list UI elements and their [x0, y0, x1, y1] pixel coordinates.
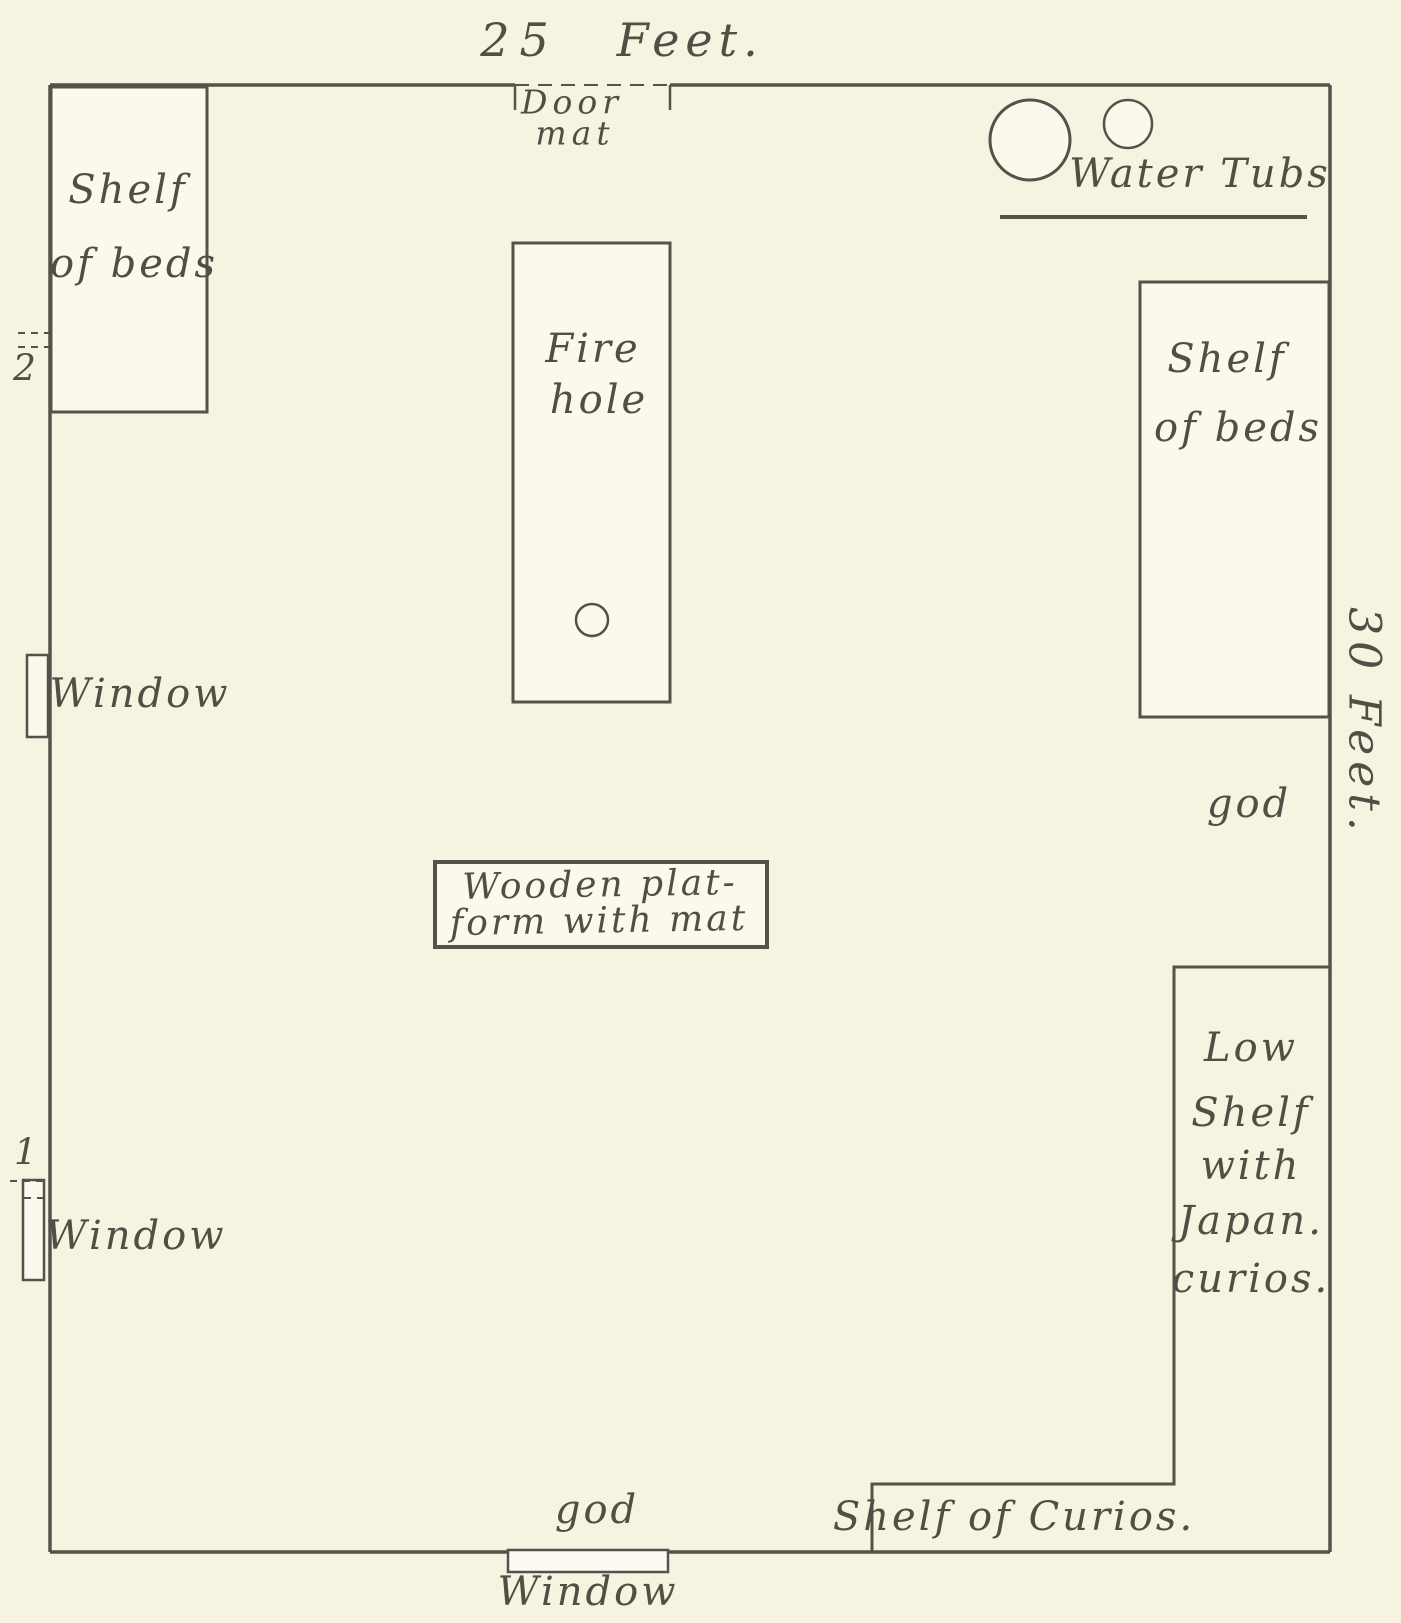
god-shelf-right-label: god: [1207, 781, 1291, 827]
shelf-of-beds-left-line1: Shelf: [68, 167, 187, 213]
wooden-platform-line2: form with mat: [450, 898, 749, 944]
window-lower-left-outline: [23, 1180, 44, 1280]
god-shelf-bottom-label: god: [555, 1487, 639, 1533]
fire-hole-circle: [576, 604, 608, 636]
low-shelf-line5: curios.: [1172, 1256, 1330, 1302]
water-tub-small: [1104, 100, 1152, 148]
water-tub-large: [990, 100, 1070, 180]
window-bottom-label: Window: [498, 1569, 679, 1615]
top-dimension-number: 25: [480, 13, 559, 67]
water-tubs-label: Water Tubs: [1069, 151, 1331, 197]
low-shelf-line3: with: [1201, 1143, 1302, 1189]
low-shelf-line1: Low: [1204, 1025, 1298, 1071]
window-upper-left-outline: [27, 655, 48, 737]
shelf-of-beds-right-line2: of beds: [1154, 405, 1322, 451]
fire-hole-line1: Fire: [545, 326, 640, 372]
top-dimension-label: 25Feet.: [480, 13, 764, 67]
door-label-line2: mat: [535, 114, 614, 153]
fire-hole-line2: hole: [550, 377, 648, 423]
right-dimension-label: 30 Feet.: [1339, 607, 1390, 837]
low-shelf-line4: Japan.: [1178, 1198, 1324, 1244]
window-upper-left-label: Window: [50, 671, 231, 717]
shelf-of-curios-label: Shelf of Curios.: [833, 1494, 1195, 1540]
room-walls: [50, 85, 1330, 1552]
shelf-of-beds-right-line1: Shelf: [1167, 336, 1286, 382]
floor-plan: 25Feet. 30 Feet. Door mat Water Tubs She…: [0, 0, 1401, 1623]
low-shelf-line2: Shelf: [1191, 1090, 1310, 1136]
window-lower-left-label: Window: [46, 1213, 227, 1259]
wall-mark-dashes-upper: [18, 333, 50, 347]
shelf-of-beds-left-line2: of beds: [50, 241, 218, 287]
wall-mark-upper-label: 2: [13, 349, 39, 390]
top-dimension-unit: Feet.: [617, 13, 764, 67]
wall-mark-lower-label: 1: [14, 1133, 40, 1174]
